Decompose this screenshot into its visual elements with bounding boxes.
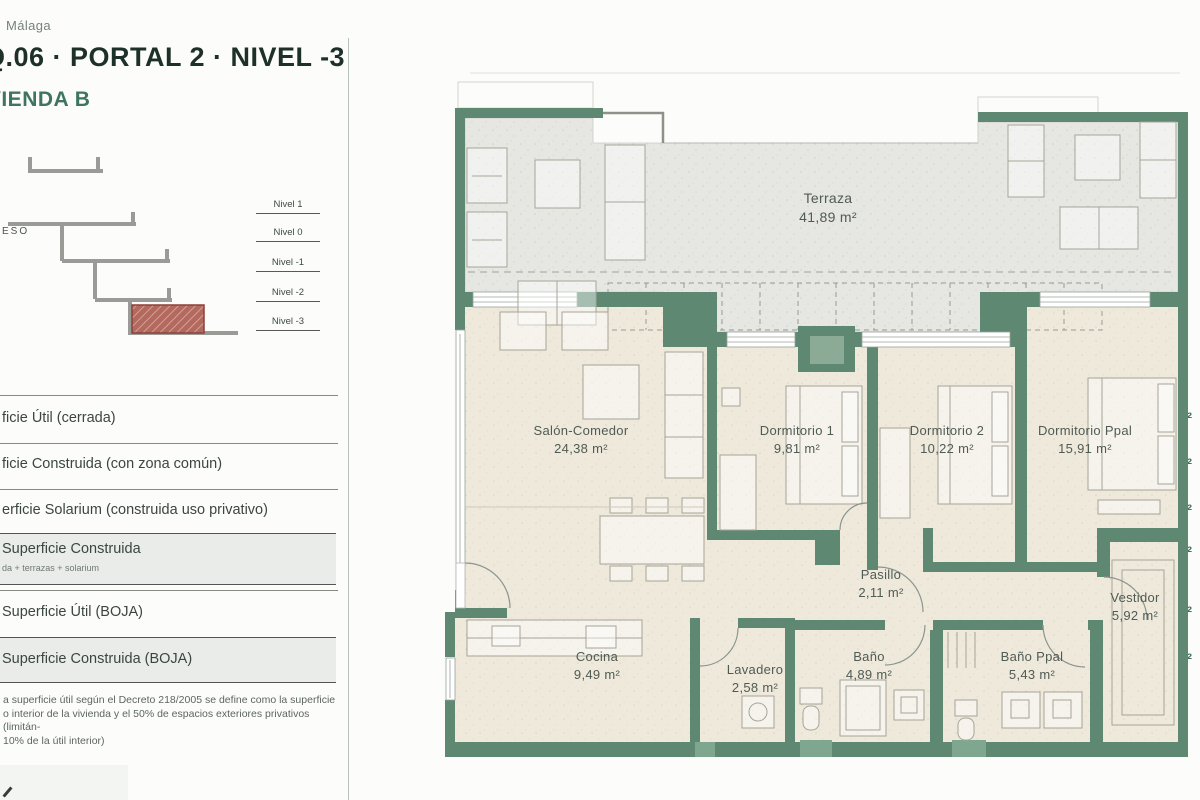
highlighted-level-block: [132, 305, 204, 333]
interior-floor: [455, 307, 1178, 742]
room-name: Baño Ppal: [1001, 649, 1064, 664]
room-name: Terraza: [799, 190, 857, 206]
unit-name: VIVIENDA B: [0, 88, 90, 112]
page-title: Q.06 · PORTAL 2 · NIVEL -3: [0, 42, 345, 73]
table-divider: [0, 489, 338, 490]
room-name: Dormitorio Ppal: [1038, 423, 1132, 438]
room-area: 10,22 m²: [910, 441, 984, 456]
room-name: Vestidor: [1110, 590, 1159, 605]
room-label-dormitorio-ppal: Dormitorio Ppal 15,91 m²: [1038, 423, 1132, 456]
room-area: 9,81 m²: [760, 441, 834, 456]
room-area: 2,11 m²: [858, 585, 903, 600]
room-label-terraza: Terraza 41,89 m²: [799, 190, 857, 225]
table-row-label: Superficie Construida: [2, 541, 141, 557]
room-label-lavadero: Lavadero 2,58 m²: [727, 662, 784, 695]
door-leaf: [456, 563, 465, 608]
room-name: Salón-Comedor: [534, 423, 629, 438]
room-label-dormitorio1: Dormitorio 1 9,81 m²: [760, 423, 834, 456]
table-row-label: Superficie Útil (BOJA): [2, 604, 143, 620]
room-label-cocina: Cocina 9,49 m²: [574, 649, 620, 682]
room-name: Dormitorio 1: [760, 423, 834, 438]
location-text: Málaga: [6, 18, 51, 33]
table-row-label: erficie Solarium (construida uso privati…: [2, 502, 268, 518]
table-row-label: Superficie Construida (BOJA): [2, 651, 192, 667]
table-row-label: ficie Construida (con zona común): [2, 456, 222, 472]
level-label-minus2: Nivel -2: [256, 287, 320, 302]
level-label-1: Nivel 1: [256, 199, 320, 214]
table-row-sublabel: da + terrazas + solarium: [2, 563, 99, 573]
legal-footnote: a superficie útil según el Decreto 218/2…: [3, 694, 348, 748]
room-label-bano-ppal: Baño Ppal 5,43 m²: [1001, 649, 1064, 682]
section-entry-label: GRESO: [0, 226, 29, 237]
footnote-line: 10% de la útil interior): [3, 735, 348, 749]
room-area: 5,92 m²: [1110, 608, 1159, 623]
table-row-label: ficie Útil (cerrada): [2, 410, 116, 426]
sidebar-divider: [348, 38, 349, 800]
room-area: 15,91 m²: [1038, 441, 1132, 456]
room-label-bano: Baño 4,89 m²: [846, 649, 892, 682]
table-divider: [0, 443, 338, 444]
floor-plan: [440, 60, 1200, 770]
room-area: 5,43 m²: [1001, 667, 1064, 682]
room-area: 2,58 m²: [727, 680, 784, 695]
room-area: 24,38 m²: [534, 441, 629, 456]
room-label-dormitorio2: Dormitorio 2 10,22 m²: [910, 423, 984, 456]
page: { "header": { "location": "Málaga", "tit…: [0, 0, 1200, 800]
compass-box: [0, 765, 128, 800]
room-name: Cocina: [574, 649, 620, 664]
room-label-vestidor: Vestidor 5,92 m²: [1110, 590, 1159, 623]
room-label-pasillo: Pasillo 2,11 m²: [858, 567, 903, 600]
level-label-minus3: Nivel -3: [256, 316, 320, 331]
level-label-minus1: Nivel -1: [256, 257, 320, 272]
table-divider: [0, 395, 338, 396]
level-label-0: Nivel 0: [256, 227, 320, 242]
room-area: 41,89 m²: [799, 209, 857, 225]
table-divider: [0, 590, 338, 591]
footnote-line: a superficie útil según el Decreto 218/2…: [3, 694, 348, 708]
footnote-line: o interior de la vivienda y el 50% de es…: [3, 708, 348, 735]
room-name: Dormitorio 2: [910, 423, 984, 438]
room-name: Lavadero: [727, 662, 784, 677]
room-area: 9,49 m²: [574, 667, 620, 682]
room-name: Baño: [846, 649, 892, 664]
terrace-corner: [603, 113, 663, 143]
room-area: 4,89 m²: [846, 667, 892, 682]
room-label-salon: Salón-Comedor 24,38 m²: [534, 423, 629, 456]
room-name: Pasillo: [858, 567, 903, 582]
